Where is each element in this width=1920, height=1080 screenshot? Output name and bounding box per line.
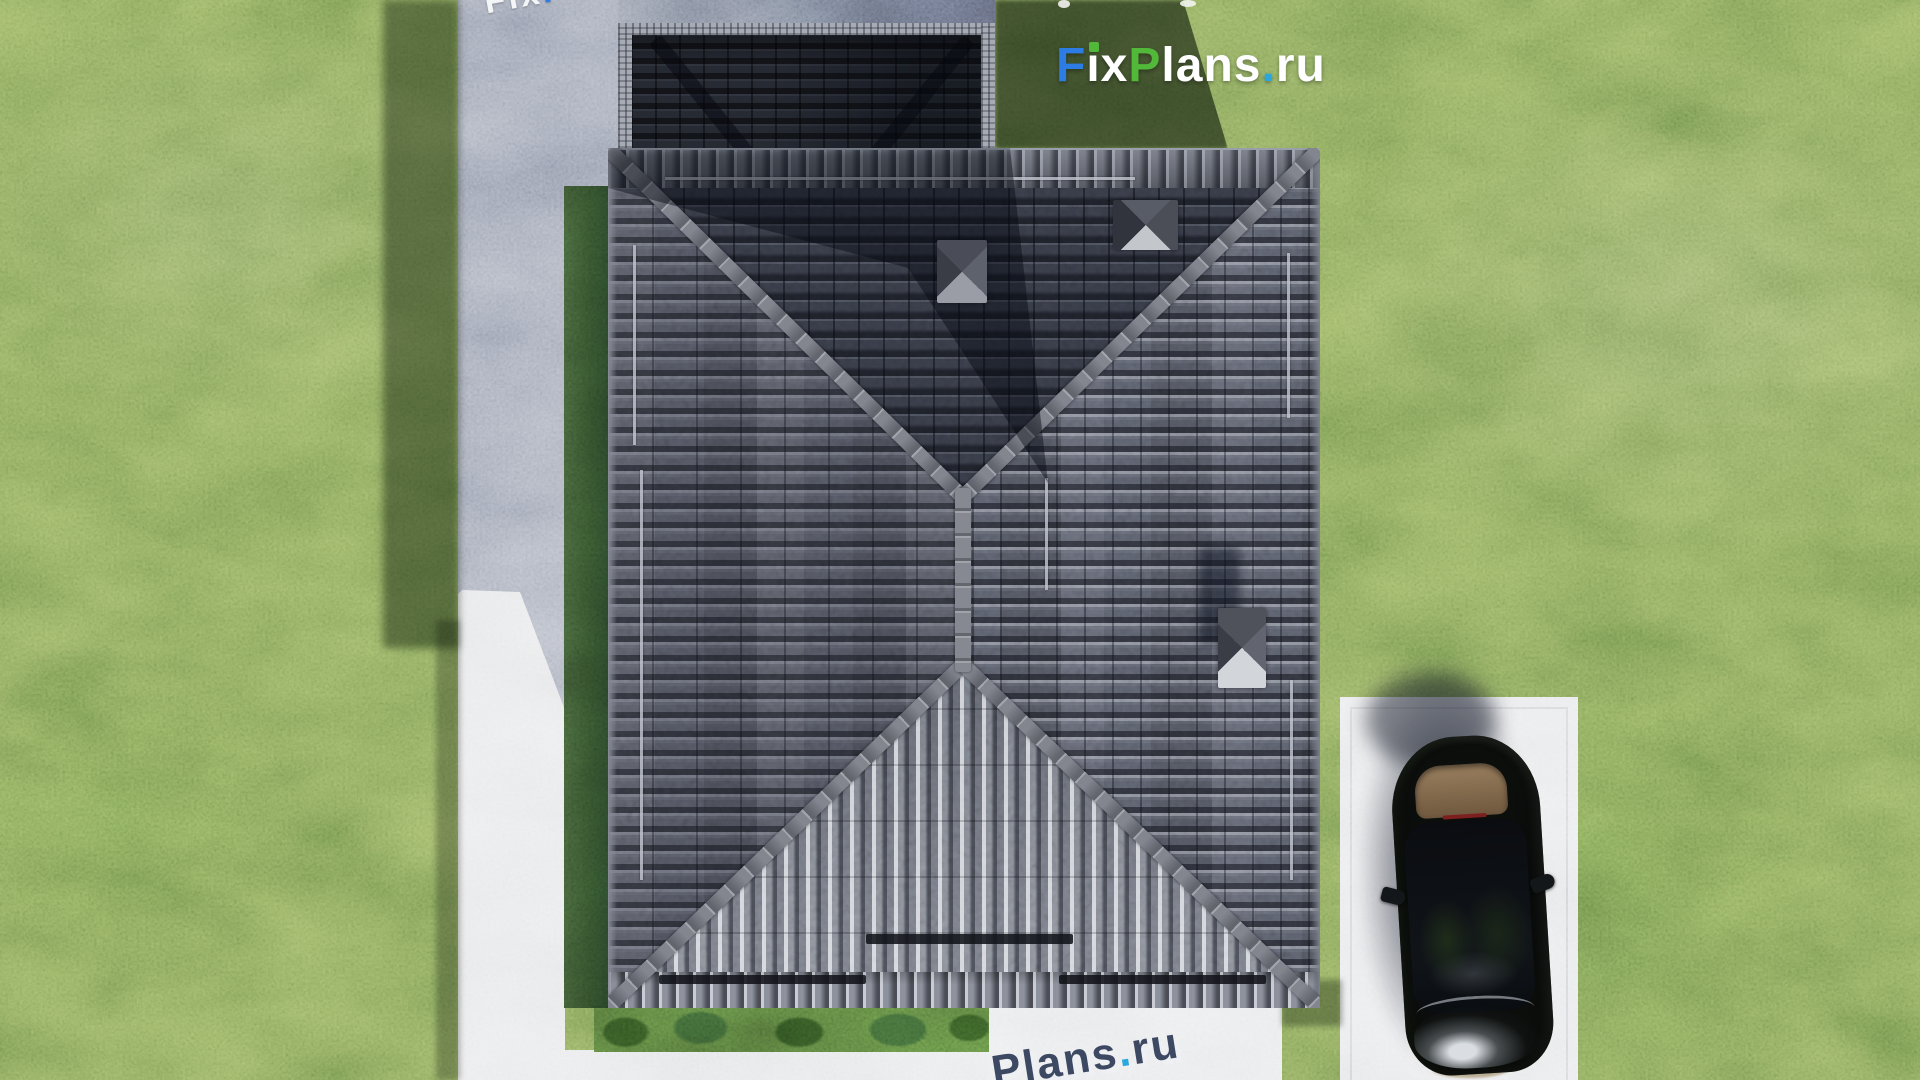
watermark-letter: s (1234, 38, 1262, 93)
watermark-letter: s (1088, 1028, 1122, 1080)
garage-roof-surface (631, 34, 982, 148)
watermark-letter: u (1147, 1018, 1183, 1072)
roof-vent-slot (1059, 975, 1266, 984)
snow-guard-rail (1290, 680, 1293, 880)
car-body (1388, 732, 1556, 1078)
main-roof (608, 148, 1320, 1008)
watermark-letter: i (504, 0, 523, 18)
snow-guard-rail (665, 177, 1135, 180)
car-hood-sheen (1412, 1002, 1542, 1072)
roof-plane-south (608, 148, 1320, 1008)
garage-hip-right (869, 35, 975, 148)
debris-speck (1180, 0, 1196, 7)
watermark-letter: a (576, 0, 605, 5)
house-shadow-on-lawn (995, 0, 1228, 149)
driveway-left-shaded (458, 0, 618, 712)
watermark-letter: P (538, 0, 570, 12)
roof-vent-pyramid (937, 240, 987, 303)
ground-texture-coarse (0, 0, 1920, 1080)
roof-eave-left (608, 148, 617, 1008)
garage-roof-shade (631, 34, 982, 148)
roof-vent-shadow (1200, 546, 1240, 644)
roof-plane-west (608, 148, 1320, 1008)
watermark-letter: a (1176, 38, 1204, 93)
lawn-shadow-band-left (383, 0, 459, 648)
watermark-letter: n (1203, 38, 1233, 93)
parking-pad-joint (1350, 707, 1568, 1080)
fixplans-watermark-bottom: Plans.ru (988, 1018, 1183, 1080)
snow-guard-rail (1045, 478, 1048, 590)
watermark-letter: a (1033, 1037, 1067, 1080)
watermark-letter-dot (1089, 42, 1099, 52)
car-shadow (1352, 660, 1538, 1080)
snow-guard-rail (633, 245, 636, 445)
watermark-letter: i (1086, 38, 1100, 93)
watermark-letter: x (1101, 38, 1129, 93)
watermark-letter: u (1296, 38, 1326, 93)
snow-guard-rail (640, 470, 643, 880)
watermark-letter: x (517, 0, 546, 16)
roof-hip-top-left (608, 148, 970, 504)
roof-hip-top-right (954, 148, 1320, 506)
watermark-letter: . (1114, 1026, 1136, 1078)
car-brake-light (1443, 813, 1487, 820)
ground-texture-fine (0, 0, 1920, 1080)
roof-eave-top (608, 148, 1320, 188)
garage-parapet-right (981, 23, 995, 148)
walkway-bottom (565, 1050, 989, 1080)
roof-vent-pyramid (1113, 200, 1178, 250)
watermark-letter: n (1059, 1032, 1095, 1080)
hedge-shadow-strip (564, 186, 608, 1008)
watermark-letter: n (597, 0, 627, 1)
watermark-letter: l (1161, 38, 1175, 93)
watermark-letter: P (988, 1043, 1027, 1080)
watermark-letter: r (1276, 38, 1296, 93)
roof-eave-right (1311, 148, 1320, 1008)
debris-speck (1058, 0, 1070, 8)
roof-ridge (955, 488, 971, 672)
grass-mottle (0, 0, 1920, 1080)
roof-vent-slot (866, 934, 1073, 944)
grass-field (0, 0, 1920, 1080)
bush-strip (594, 1008, 989, 1052)
terrace-slab (988, 1004, 1282, 1080)
snow-guard-rail (1287, 253, 1290, 418)
roof-eave-bottom (608, 972, 1320, 1008)
car-mirror-left (1380, 886, 1407, 907)
garden-path-sunlit (458, 560, 565, 1080)
garage-hip-left (649, 35, 755, 148)
watermark-letter: . (1261, 38, 1275, 93)
roof-hip-bottom-right (958, 659, 1320, 1008)
watermark-letter: F (481, 0, 511, 22)
roof-hip-bottom-left (608, 659, 968, 1008)
garage-parapet-left (618, 23, 632, 148)
garage-shadow-on-roof (608, 148, 1320, 1008)
watermark-letter: F (1056, 38, 1086, 93)
watermark-letter: l (563, 0, 582, 7)
fixplans-watermark-main: FixPlans.ru (1056, 38, 1326, 93)
roof-vent-pyramid (1218, 608, 1266, 688)
aerial-render: FixPlans.ru FixPlans.ru Plans.ru (0, 0, 1920, 1080)
car-parcel-shelf (1414, 762, 1509, 820)
lawn-shadow-edge-left (436, 620, 460, 1080)
car (1381, 723, 1562, 1080)
parking-pad (1340, 697, 1578, 1080)
driveway-top-shaded (458, 0, 995, 31)
roof-texture-noise (608, 148, 1320, 1008)
car-roof-glass (1403, 817, 1536, 1016)
roof-plane-north (608, 148, 1320, 1008)
garage-parapet-top (618, 23, 995, 35)
car-shadow-rear (1366, 672, 1496, 768)
watermark-letter: l (1019, 1041, 1041, 1080)
watermark-letter: r (1128, 1023, 1155, 1075)
garage-roof (618, 23, 995, 148)
fixplans-watermark-small: FixPlans.ru (481, 0, 701, 22)
car-mirror-right (1529, 872, 1557, 895)
car-windshield-edge (1416, 992, 1536, 1028)
roof-vent-slot (659, 975, 866, 984)
lawn-shadow-gap (1282, 980, 1342, 1026)
roof-plane-east (608, 148, 1320, 1008)
ground-patch (1432, 1060, 1508, 1078)
watermark-letter: P (1128, 38, 1161, 93)
